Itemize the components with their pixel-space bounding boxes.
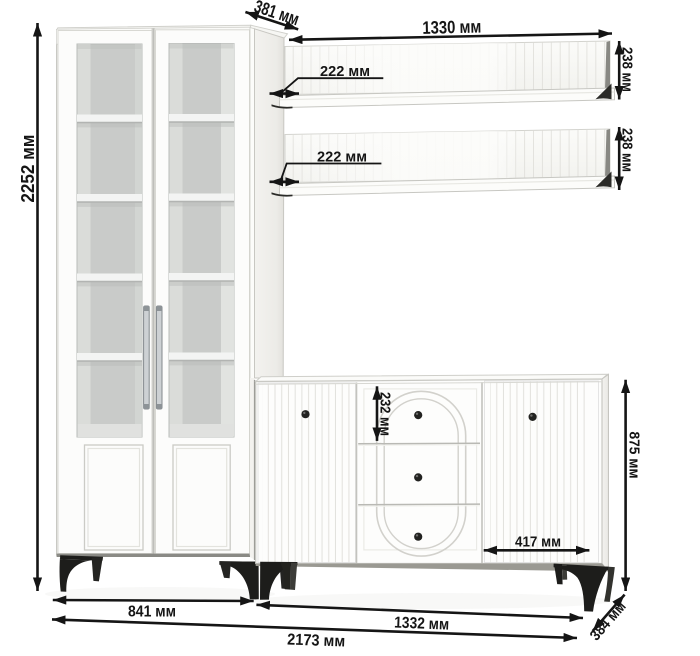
svg-text:841 мм: 841 мм: [128, 604, 176, 621]
svg-text:232 мм: 232 мм: [377, 392, 393, 436]
svg-text:417 мм: 417 мм: [515, 534, 561, 551]
svg-text:1330 мм: 1330 мм: [422, 17, 481, 38]
svg-text:238 мм: 238 мм: [619, 128, 635, 172]
svg-text:222 мм: 222 мм: [317, 149, 367, 166]
svg-text:2252 мм: 2252 мм: [18, 135, 38, 203]
svg-text:2173 мм: 2173 мм: [287, 632, 346, 651]
svg-text:875 мм: 875 мм: [626, 432, 643, 479]
svg-text:222 мм: 222 мм: [320, 63, 370, 80]
svg-text:238 мм: 238 мм: [619, 47, 635, 92]
